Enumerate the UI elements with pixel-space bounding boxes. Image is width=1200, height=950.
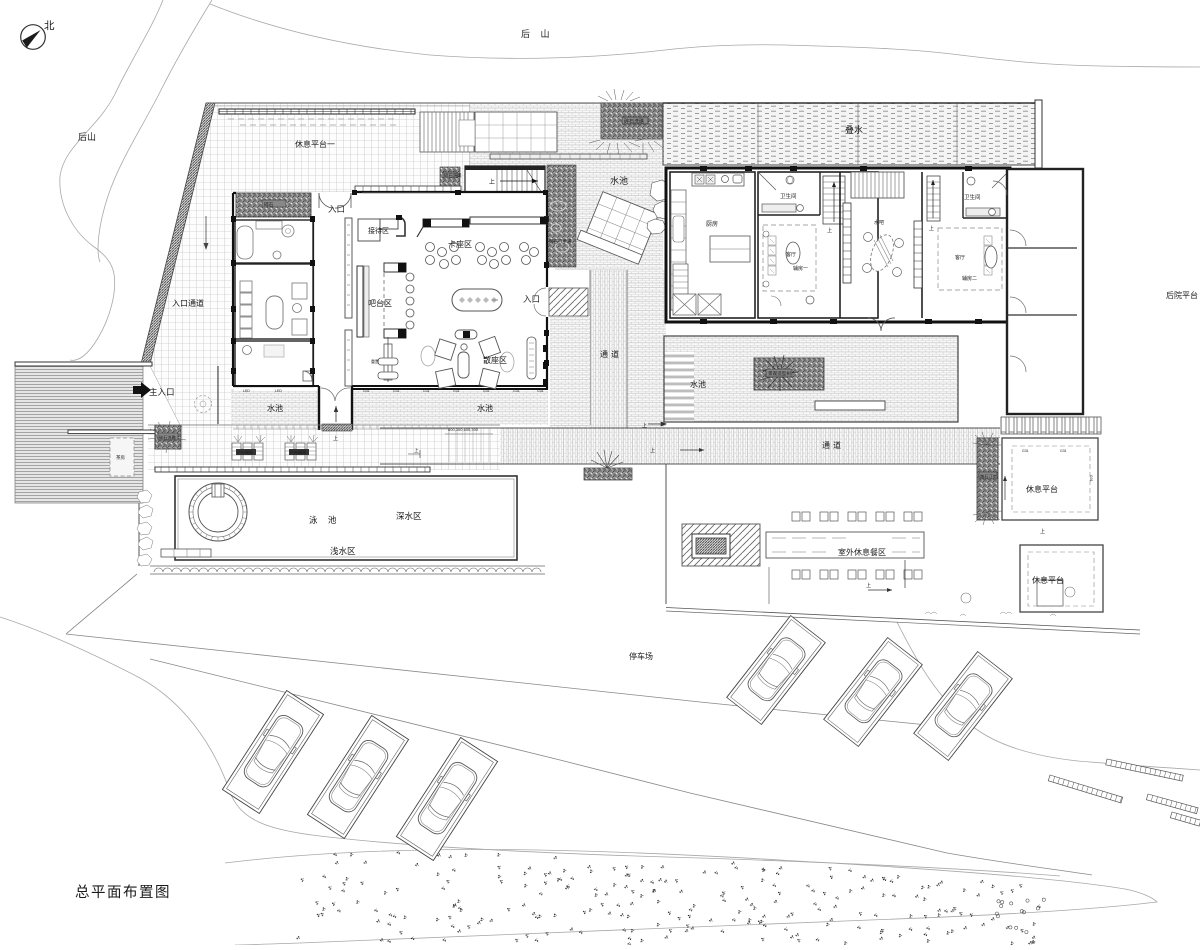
svg-text:户外躺椅: 户外躺椅	[290, 449, 306, 455]
svg-text:休息平台一: 休息平台一	[295, 139, 335, 149]
svg-text:入口: 入口	[328, 204, 345, 214]
svg-text:上: 上	[866, 582, 871, 589]
svg-text:辅房二: 辅房二	[962, 275, 977, 282]
svg-text:浅水区: 浅水区	[330, 546, 356, 556]
svg-text:G31: G31	[483, 389, 490, 393]
svg-text:G31: G31	[1089, 475, 1093, 482]
svg-text:G31: G31	[423, 389, 430, 393]
svg-text:LED: LED	[243, 389, 250, 393]
svg-text:入口: 入口	[523, 294, 540, 304]
svg-text:通道: 通道	[600, 349, 622, 359]
svg-text:通道: 通道	[822, 440, 844, 450]
svg-text:上: 上	[414, 447, 419, 453]
svg-text:辅房一: 辅房一	[793, 265, 808, 272]
svg-text:上: 上	[333, 435, 338, 442]
svg-text:卫生间: 卫生间	[780, 192, 797, 200]
svg-text:碎石洗礁: 碎石洗礁	[444, 172, 462, 179]
svg-text:G31: G31	[513, 389, 520, 393]
svg-text:水吧: 水吧	[874, 219, 884, 226]
svg-text:停车场: 停车场	[629, 651, 653, 661]
svg-text:G31: G31	[537, 389, 544, 393]
svg-text:600,300,600,300: 600,300,600,300	[448, 427, 479, 432]
svg-text:散座区: 散座区	[483, 355, 507, 365]
svg-text:重置: 重置	[371, 358, 379, 364]
svg-text:后院平台: 后院平台	[1166, 290, 1198, 300]
svg-text:景观造型树: 景观造型树	[768, 370, 791, 377]
svg-text:G31: G31	[393, 389, 400, 393]
svg-text:室外休息餐区: 室外休息餐区	[838, 547, 886, 557]
svg-text:踏石汀步: 踏石汀步	[980, 473, 997, 480]
svg-text:主入口: 主入口	[149, 387, 175, 397]
svg-text:碎石: 碎石	[264, 201, 274, 208]
svg-text:厨房: 厨房	[706, 220, 718, 228]
svg-text:客厅: 客厅	[955, 254, 965, 261]
svg-text:卫生间: 卫生间	[964, 193, 981, 201]
svg-text:泳 池: 泳 池	[309, 515, 340, 525]
svg-text:卡座区: 卡座区	[448, 239, 472, 249]
svg-text:水池: 水池	[610, 175, 628, 186]
svg-text:上: 上	[827, 227, 832, 234]
svg-text:碎石洗礁: 碎石洗礁	[624, 118, 644, 125]
svg-text:水池: 水池	[267, 403, 283, 413]
svg-text:G31: G31	[1022, 449, 1029, 453]
svg-text:上: 上	[1040, 528, 1045, 535]
svg-text:G31: G31	[363, 389, 370, 393]
svg-text:叠水: 叠水	[845, 124, 863, 135]
svg-text:G31: G31	[453, 389, 460, 393]
svg-text:户外躺椅: 户外躺椅	[237, 449, 253, 455]
svg-text:茶房: 茶房	[116, 454, 125, 461]
svg-text:上: 上	[489, 178, 495, 186]
svg-text:北: 北	[44, 20, 55, 32]
svg-text:上: 上	[642, 422, 647, 429]
svg-text:水池: 水池	[690, 379, 706, 389]
svg-text:LED: LED	[275, 389, 282, 393]
svg-text:上: 上	[929, 225, 934, 232]
svg-text:入口通道: 入口通道	[172, 298, 204, 308]
svg-text:G31: G31	[1060, 449, 1067, 453]
svg-text:客厅: 客厅	[786, 251, 796, 258]
svg-text:后 山: 后 山	[521, 29, 554, 39]
svg-text:碎石洗礁: 碎石洗礁	[159, 434, 177, 441]
svg-text:休息平台: 休息平台	[1026, 484, 1058, 494]
svg-text:水池: 水池	[477, 403, 493, 413]
svg-text:总平面布置图: 总平面布置图	[75, 884, 171, 901]
svg-text:后山: 后山	[78, 132, 96, 142]
svg-text:休息平台: 休息平台	[1032, 575, 1064, 585]
svg-text:踏石汀步道: 踏石汀步道	[549, 238, 572, 245]
svg-text:深水区: 深水区	[396, 511, 422, 521]
svg-text:接待区: 接待区	[368, 226, 389, 235]
svg-text:上: 上	[650, 447, 655, 454]
svg-text:吧台区: 吧台区	[368, 298, 392, 308]
